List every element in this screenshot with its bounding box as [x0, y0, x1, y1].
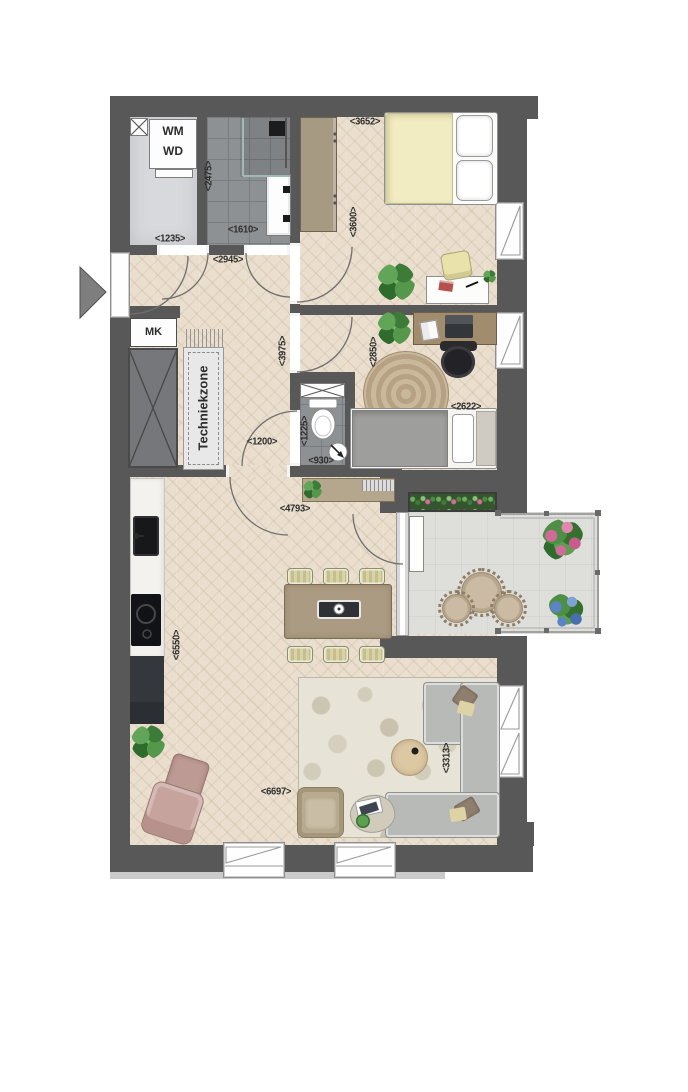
door-frame-tick: [290, 313, 300, 316]
door-frame-tick: [226, 465, 229, 477]
dimension-label: <1225>: [300, 416, 311, 446]
door-frame-tick: [157, 245, 160, 255]
floorplan: WM WD MK Techniekzone: [0, 0, 688, 1092]
dimension-label: <6697>: [261, 787, 291, 798]
balcony-door-open-panel: [409, 516, 424, 572]
cooktop: [131, 594, 161, 646]
flower-plant-pink: [542, 519, 584, 561]
dining-chair: [287, 646, 313, 663]
door-frame-tick: [206, 245, 209, 255]
washer-dryer-step: [155, 169, 193, 178]
dimension-label: <6550>: [172, 630, 183, 660]
techniekzone-label: Techniekzone: [196, 365, 211, 450]
dimension-label: <930>: [308, 456, 333, 467]
door-frame-tick: [290, 301, 300, 304]
kitchen-tall-cabinet: [130, 656, 164, 724]
dining-chair: [323, 646, 349, 663]
door-frame-tick: [290, 243, 300, 246]
pouf-small: [442, 594, 471, 623]
washer-dryer-unit: WM WD: [149, 119, 197, 169]
door-frame-tick: [244, 245, 247, 255]
door-frame-tick: [290, 463, 300, 466]
plant-small: [483, 270, 496, 283]
pillow: [456, 115, 493, 157]
open-book: [419, 320, 439, 342]
window-living-south-left: [223, 842, 285, 878]
dimension-label: <3600>: [349, 207, 360, 237]
door-frame-tick: [290, 370, 300, 373]
office-chair-seat: [441, 346, 475, 378]
single-bed-pillow: [452, 414, 474, 463]
plant-pot: [303, 480, 322, 499]
dimension-label: <1200>: [247, 437, 277, 448]
wardrobe: [300, 117, 337, 232]
rattan-chair-cushion: [304, 797, 337, 830]
door-frame-tick: [287, 245, 290, 255]
wc-shaft: [300, 383, 345, 398]
coffee-table: [391, 739, 428, 776]
dimension-label: <3652>: [350, 117, 380, 128]
wall-bottom: [110, 845, 533, 872]
wall-left-upper: [110, 96, 130, 252]
wall-balcony-top: [380, 470, 497, 492]
dimension-label: <1235>: [155, 234, 185, 245]
door-frame-tick: [287, 465, 290, 477]
wall-mk-top: [128, 306, 180, 318]
dimension-label: <2945>: [213, 255, 243, 266]
plant-large: [131, 725, 165, 759]
vent-box: [130, 118, 148, 136]
dimension-label: <2850>: [369, 337, 380, 367]
radiator-hatch: [186, 329, 224, 347]
dimension-label: <2622>: [451, 402, 481, 413]
dining-chair: [323, 568, 349, 585]
meter-cupboard-label: MK: [131, 326, 176, 338]
bathroom-washbasin: [266, 174, 291, 236]
sofa-bottom-section: [385, 792, 500, 838]
dining-chair: [287, 568, 313, 585]
window-bedroom1: [495, 202, 524, 260]
passage-floor: [228, 465, 288, 477]
dining-chair: [359, 568, 385, 585]
plant: [377, 263, 415, 301]
wall-right-step: [523, 822, 534, 846]
dimension-label: <3975>: [278, 336, 289, 366]
sofa-cushion-yellow: [449, 807, 467, 823]
meter-cupboard: MK: [130, 318, 177, 347]
wall-balcony-bottom: [380, 636, 527, 658]
single-bed-duvet: [352, 410, 448, 467]
entrance-opening: [110, 252, 130, 318]
dimension-label: <2475>: [204, 161, 215, 191]
radiator-grille: [362, 480, 394, 491]
dimension-label: <1610>: [228, 225, 258, 236]
pillow: [456, 160, 493, 201]
side-table-bowl: [356, 814, 370, 828]
window-bedroom2: [495, 312, 524, 369]
balcony-planter: [408, 492, 497, 512]
shaft: [128, 348, 178, 468]
flower-plant-blue: [546, 593, 586, 633]
bedroom-desk: [426, 276, 489, 304]
washer-label: WM: [150, 124, 196, 138]
pouf-small: [494, 594, 523, 623]
desk-book: [438, 280, 453, 292]
entrance-arrow: [80, 267, 106, 318]
wall-hall-north-a: [130, 245, 160, 255]
door-frame-tick: [290, 410, 300, 413]
wall-bath-bedroom: [290, 117, 300, 245]
dryer-label: WD: [150, 144, 196, 158]
kitchen-sink: [133, 516, 159, 556]
table-tray: [317, 600, 361, 619]
window-living-south-right: [334, 842, 396, 878]
desk-chair-yellow: [440, 250, 473, 282]
plant: [377, 311, 411, 345]
dining-chair: [359, 646, 385, 663]
laptop: [445, 315, 473, 338]
wall-right: [497, 96, 527, 513]
wall-hall-north-b: [208, 245, 246, 255]
dimension-label: <4793>: [280, 504, 310, 515]
single-bed-headboard: [476, 411, 496, 466]
balcony-door-frame: [396, 512, 409, 636]
wall-left-lower: [110, 318, 130, 872]
double-bed-duvet: [385, 113, 453, 204]
shower-zone: [240, 117, 290, 177]
dimension-label: <3313>: [442, 743, 453, 773]
